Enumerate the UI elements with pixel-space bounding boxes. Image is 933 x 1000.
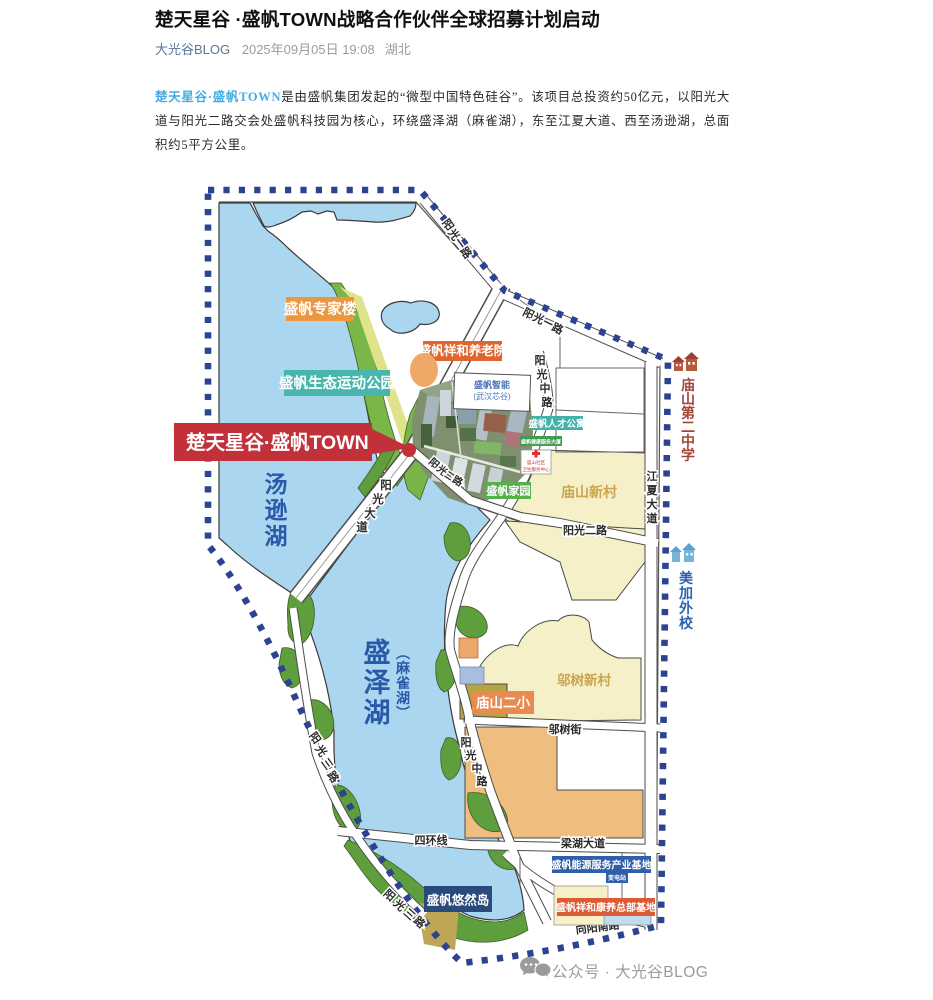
svg-text:︵: ︵ <box>395 645 410 661</box>
svg-text:盛帆家园: 盛帆家园 <box>487 484 531 498</box>
svg-text:雀: 雀 <box>395 675 410 691</box>
svg-text:邬树新村: 邬树新村 <box>557 672 611 688</box>
svg-text:盛帆健康服务大厦: 盛帆健康服务大厦 <box>521 439 562 446</box>
svg-text:光: 光 <box>536 367 548 381</box>
svg-text:湖: 湖 <box>265 523 288 549</box>
svg-text:(武汉芯谷): (武汉芯谷) <box>473 391 511 401</box>
svg-text:︶: ︶ <box>395 705 410 721</box>
svg-text:阳: 阳 <box>535 353 546 367</box>
svg-text:泽: 泽 <box>364 668 391 698</box>
svg-text:盛帆生态运动公园: 盛帆生态运动公园 <box>279 374 395 392</box>
svg-text:盛帆专家楼: 盛帆专家楼 <box>284 300 357 318</box>
svg-text:盛帆悠然岛: 盛帆悠然岛 <box>427 893 490 908</box>
svg-text:江: 江 <box>647 469 658 483</box>
svg-text:加: 加 <box>678 585 693 601</box>
svg-text:光: 光 <box>371 492 384 506</box>
svg-text:外: 外 <box>679 600 693 616</box>
svg-text:庙山二小: 庙山二小 <box>476 695 530 711</box>
svg-text:道: 道 <box>647 511 658 525</box>
svg-text:麻: 麻 <box>395 660 411 676</box>
svg-text:湖: 湖 <box>364 698 391 728</box>
svg-text:楚天星谷·盛帆TOWN: 楚天星谷·盛帆TOWN <box>186 431 369 454</box>
svg-text:庙山社区: 庙山社区 <box>527 459 546 466</box>
svg-text:阳: 阳 <box>380 478 392 492</box>
svg-text:中: 中 <box>540 381 551 395</box>
svg-text:汤: 汤 <box>265 471 288 497</box>
svg-text:阳光二路: 阳光二路 <box>563 523 608 537</box>
svg-text:卫生服务中心: 卫生服务中心 <box>522 466 550 473</box>
svg-text:夏: 夏 <box>647 484 659 497</box>
svg-text:大: 大 <box>647 497 658 511</box>
svg-text:大: 大 <box>364 506 376 520</box>
svg-text:逊: 逊 <box>265 497 288 523</box>
svg-text:中: 中 <box>472 761 483 775</box>
svg-text:盛帆人才公寓: 盛帆人才公寓 <box>528 418 585 430</box>
svg-text:庙山新村: 庙山新村 <box>561 484 617 500</box>
svg-text:变电站: 变电站 <box>608 874 626 882</box>
svg-text:学: 学 <box>681 447 695 463</box>
svg-text:美: 美 <box>679 570 694 586</box>
svg-text:梁湖大道: 梁湖大道 <box>560 836 605 850</box>
svg-text:盛: 盛 <box>364 638 391 668</box>
svg-text:湖: 湖 <box>396 690 410 706</box>
svg-text:盛帆能源服务产业基地: 盛帆能源服务产业基地 <box>552 859 652 872</box>
svg-text:光: 光 <box>465 748 477 762</box>
svg-text:路: 路 <box>542 395 554 409</box>
svg-text:邬树街: 邬树街 <box>549 722 582 736</box>
svg-text:阳: 阳 <box>461 735 472 749</box>
svg-text:校: 校 <box>679 615 694 631</box>
svg-text:路: 路 <box>477 774 489 788</box>
svg-text:四环线: 四环线 <box>415 833 448 847</box>
svg-text:盛帆祥和养老院: 盛帆祥和养老院 <box>419 343 507 358</box>
svg-text:道: 道 <box>356 520 368 534</box>
svg-text:盛帆祥和康养总部基地: 盛帆祥和康养总部基地 <box>556 901 656 914</box>
svg-text:盛帆智能: 盛帆智能 <box>474 379 510 390</box>
